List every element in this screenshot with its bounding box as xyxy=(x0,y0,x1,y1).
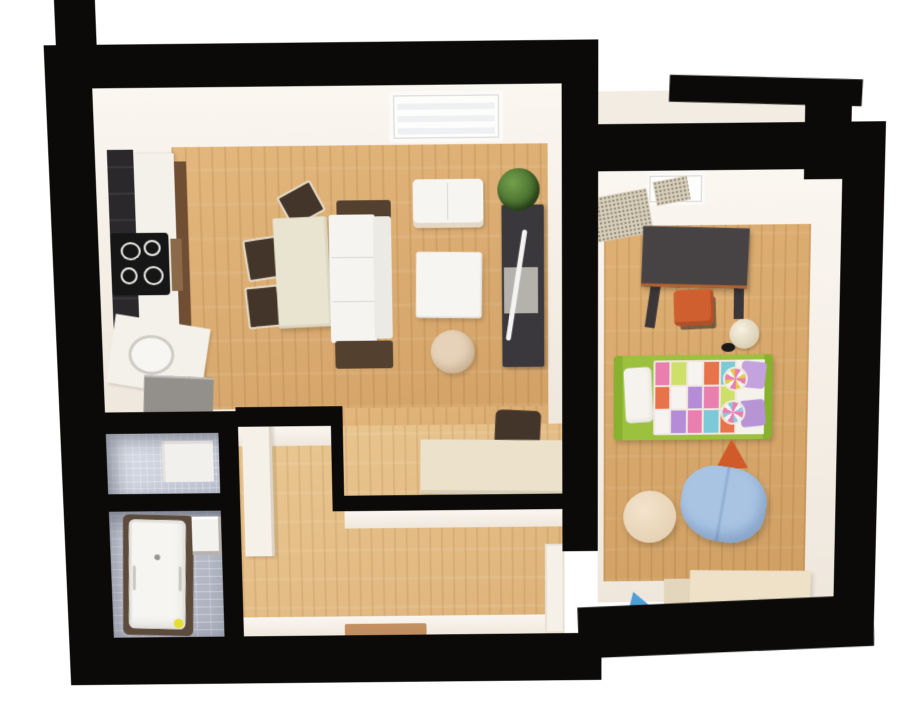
washing-machine xyxy=(161,441,214,482)
square-armchair xyxy=(416,252,482,319)
apartment-plan xyxy=(0,0,910,705)
dining-table xyxy=(272,216,332,329)
quilt-patch xyxy=(671,411,685,433)
burner-ring xyxy=(120,242,141,260)
washbasin xyxy=(191,516,223,555)
bedroom-door-jamb xyxy=(545,544,565,634)
quilt-patch xyxy=(704,410,718,432)
purple-pillow xyxy=(739,399,766,428)
hallway-door-leaf xyxy=(242,423,275,557)
sofa-base xyxy=(335,340,393,368)
wall-top-living xyxy=(54,39,598,88)
orange-stool xyxy=(673,289,714,327)
tub-drain xyxy=(154,554,160,560)
tub-handle xyxy=(179,566,182,591)
kids-bed xyxy=(614,354,773,440)
round-pouf xyxy=(431,330,475,374)
loveseat xyxy=(413,179,484,228)
hallway-wall-face-mid xyxy=(344,509,562,529)
floor-plan-render xyxy=(0,0,910,715)
burner-ring xyxy=(143,266,164,285)
wall-living-hall xyxy=(235,406,342,427)
quilt-patch xyxy=(688,362,702,385)
radiator-slats xyxy=(397,101,495,135)
wall-wc-bath-divider xyxy=(79,493,223,512)
wall-step xyxy=(330,406,344,509)
tub-handle xyxy=(133,565,136,590)
quilt-patch xyxy=(688,411,702,433)
rubber-duck xyxy=(174,619,184,629)
quilt-patch xyxy=(672,362,686,385)
burner-ring xyxy=(143,240,161,256)
living-window xyxy=(389,90,503,143)
wall-divider-living-bedroom xyxy=(562,83,599,551)
kids-desk xyxy=(641,226,750,289)
loveseat-cushion-divider xyxy=(447,183,448,220)
quilt-patch xyxy=(655,362,669,385)
quilt-patch xyxy=(655,387,669,409)
grey-base-cabinet xyxy=(144,375,214,415)
scene xyxy=(0,0,910,715)
quilt-patch xyxy=(704,386,719,408)
cooktop xyxy=(110,233,170,296)
quilt-patch xyxy=(672,387,686,409)
wall-bottom-left xyxy=(69,633,601,685)
wall-nook-hall xyxy=(332,493,566,511)
bed-footboard xyxy=(614,356,623,441)
sofa-bed xyxy=(328,200,393,369)
burner-ring xyxy=(120,267,138,284)
tv-stand xyxy=(504,267,538,313)
sofa-seat xyxy=(329,214,377,343)
bed-pillow-white xyxy=(623,367,653,424)
writing-desk xyxy=(420,439,566,494)
bathtub xyxy=(123,514,194,636)
potted-plant xyxy=(497,168,540,211)
patchwork-quilt xyxy=(653,360,737,436)
wall-bedroom-bottom xyxy=(577,595,874,659)
quilt-patch xyxy=(655,411,669,433)
quilt-patch xyxy=(704,362,719,385)
oven-front xyxy=(168,239,183,291)
quilt-patch xyxy=(688,386,702,408)
bathtub-basin xyxy=(129,519,186,629)
sofa-back-cushion xyxy=(373,216,393,338)
kitchen-sink xyxy=(128,335,175,375)
